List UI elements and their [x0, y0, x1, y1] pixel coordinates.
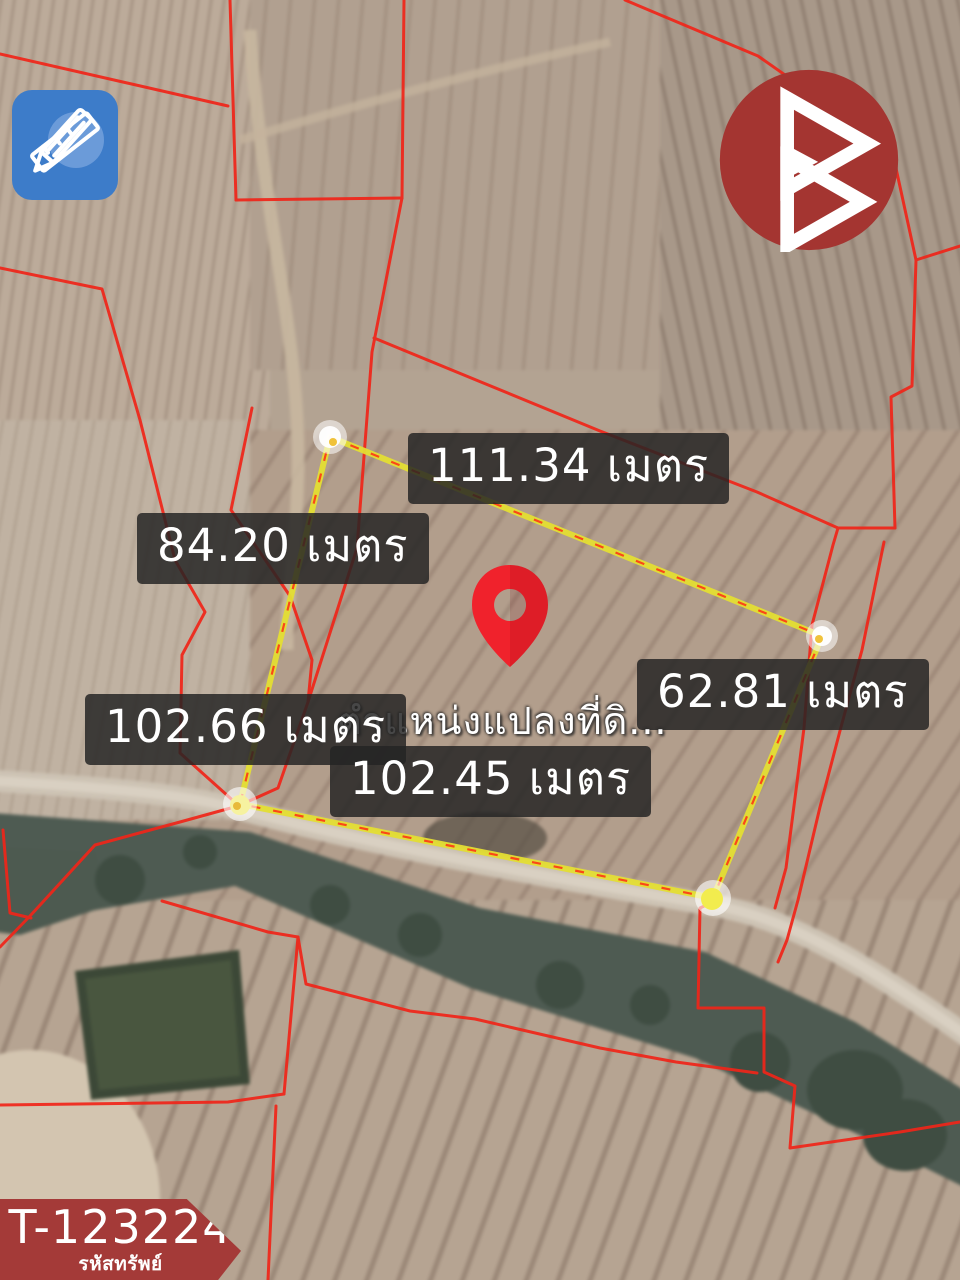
brand-logo	[718, 68, 900, 252]
vertex-handle-top[interactable]	[313, 420, 347, 454]
vertex-handle-right[interactable]	[806, 620, 838, 652]
pencil-ruler-icon	[12, 90, 118, 200]
measurement-label-left: 84.20 เมตร	[137, 513, 429, 584]
edit-tool-button[interactable]	[12, 90, 118, 200]
vertex-handle-bottom-left[interactable]	[223, 787, 257, 821]
measurement-label-right: 62.81 เมตร	[637, 659, 929, 730]
b-triangles-logo-icon	[718, 68, 900, 252]
land-plot-map: 111.34 เมตร 84.20 เมตร 62.81 เมตร ตำแหน่…	[0, 0, 960, 1280]
measurement-label-bottom: 102.45 เมตร	[330, 746, 651, 817]
measurement-label-top: 111.34 เมตร	[408, 433, 729, 504]
vertex-handle-bottom-right[interactable]	[695, 880, 731, 916]
map-pin[interactable]	[472, 565, 548, 667]
